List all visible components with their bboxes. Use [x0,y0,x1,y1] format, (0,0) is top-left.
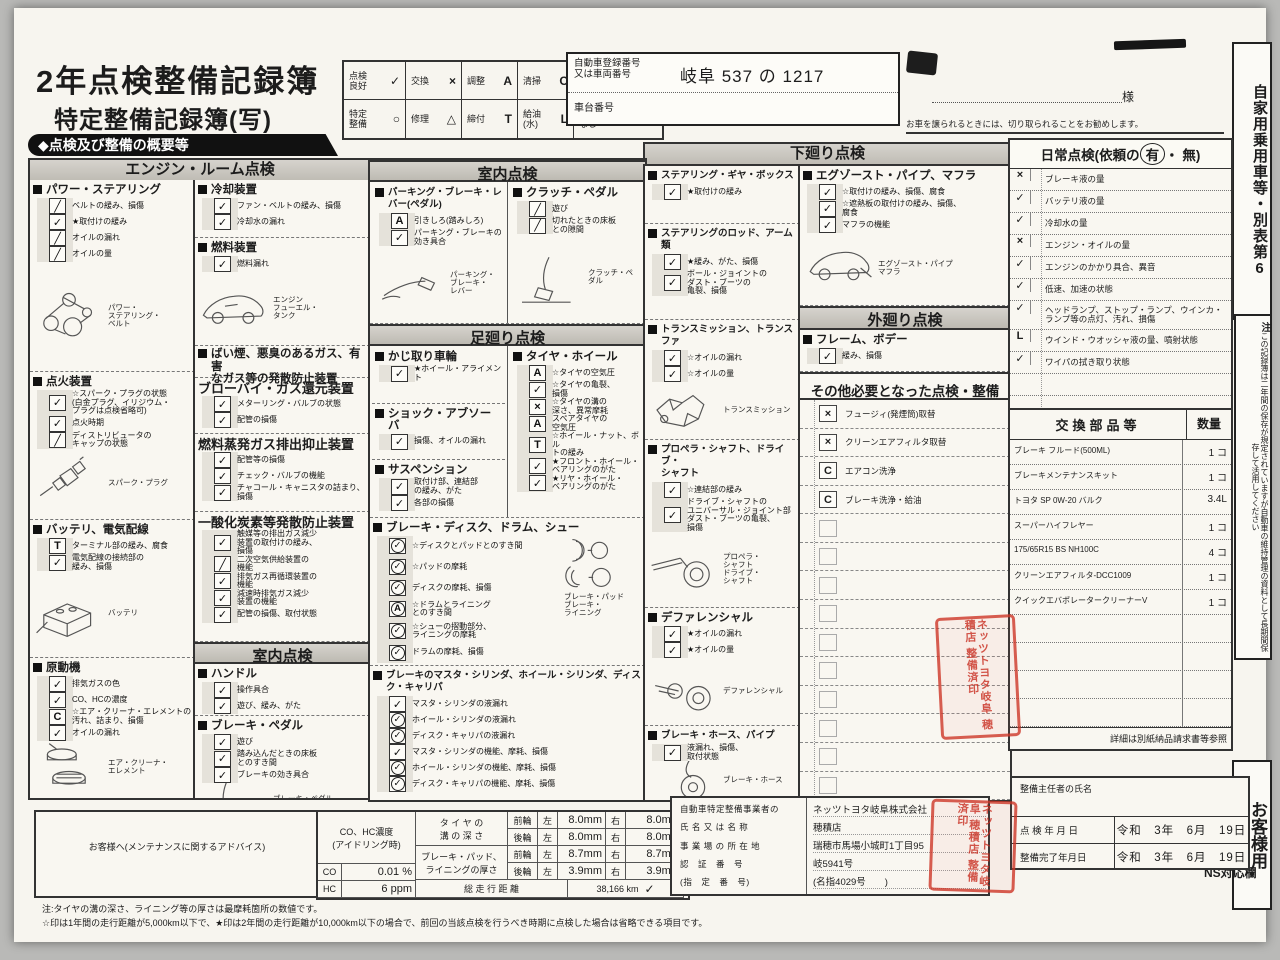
check-mark-box [819,720,837,737]
check-mark-box: ✓ [391,366,408,382]
inspection-group: ステアリングのロッド、アーム類✓★緩み、がた、損傷✓ボール・ジョイントの ダスト… [645,224,800,320]
check-mark-box: ✓ [529,475,546,491]
column-underbody-1: ステアリング・ギヤ・ボックス✓★取付けの緩みステアリングのロッド、アーム類✓★緩… [643,164,802,802]
daily-inspection-row: ✓エンジンのかかり具合、異音 [1010,257,1231,279]
check-item-label: ★ホイール・アライメント [414,365,502,382]
check-item-label: ☆オイルの漏れ [687,354,742,363]
check-mark-box: ✓ [819,184,836,200]
group-title-text: ショック・アブソーバ [388,408,502,432]
check-item: ✓★取付けの緩み [39,214,192,230]
check-item: ✓点火時期 [39,416,192,432]
check-item: ╱遊び [519,201,640,217]
part-name [1010,671,1183,698]
row-grid-cell [800,571,815,599]
check-item-label: ★取付けの緩み [687,188,742,197]
daily-check-mark: ✓ [1010,301,1031,314]
legend-mark: T [505,114,512,124]
part-illustration: エア・クリーナ・ エレメント [33,741,192,792]
check-mark-box: A [529,416,546,432]
odometer-label: 総 走 行 距 離 [416,880,568,898]
illustration-labels: プロペラ・ シャフトドライブ・ シャフト [723,553,761,585]
check-item: ✓☆ディスクとパッドとのすき間 [379,538,546,554]
illustration-label: ブレーキ・ペダル [273,795,333,801]
business-label: 氏 名 又 は 名 称 [680,821,802,833]
black-square-icon [648,171,657,180]
part-illustration: トランスミッション [648,382,797,437]
check-item-label: ドライブ・シャフトの ユニバーサル・ジョイント部 ダスト・ブーツの亀裂、 損傷 [687,498,791,532]
check-item: ✓☆スパーク・プラグの状態 (白金プラグ、イリジウム・ プラグは点検省略可) [39,390,192,416]
clutch-illustration-icon [513,250,585,304]
daily-inspection-row [1010,374,1231,396]
daily-check-mark: × [1010,169,1031,181]
check-item: ✓★ホイール・アライメント [381,365,502,382]
check-item: ╱二次空気供給装置の 機能 [204,556,367,573]
check-item: ✓★取付けの緩み [654,184,797,200]
check-items: ✓☆ディスクとパッドとのすき間✓☆パッドの摩耗✓ディスクの摩耗、損傷A☆ドラムと… [373,536,546,663]
form-title: 2年点検整備記録簿 [36,56,319,101]
check-mark-box: ✓ [389,538,406,554]
wheel-label: 前輪 [508,846,538,863]
hose-illustration-icon [648,761,720,798]
check-item-label: 配管等の損傷 [237,456,285,465]
chassis-number-label: 車台番号 [568,93,678,121]
other-maintenance-row: Cブレーキ洗浄・給油 [800,486,1010,515]
legend-cell: 特定 整備○ [344,100,406,138]
check-item: ✓★緩み、がた、損傷 [654,254,797,270]
daily-check-mark: L [1010,330,1031,342]
check-item: Tターミナル部の緩み、腐食 [39,538,192,554]
check-item-label: ボール・ジョイントの ダスト・ブーツの 亀裂、損傷 [687,270,767,296]
part-name [1010,615,1183,642]
black-square-icon [648,445,657,454]
parts-row [1010,671,1231,699]
check-item-label: ディスク・キャリパの液漏れ [412,732,515,741]
group-title: ブレーキ・ペダル [198,720,367,732]
black-square-icon [33,185,42,194]
daily-inspection-row: ×ブレーキ液の量 [1010,169,1231,191]
measurements-table: CO、HC濃度 (アイドリング時)CO0.01 %HC6 ppmタ イ ヤ の … [316,810,690,900]
circled-mark: ✓ [391,581,405,595]
check-mark-box: ✓ [49,416,66,432]
check-item: ✓損傷、オイルの漏れ [381,434,502,450]
inspection-group: ブレーキ・ホース、パイプ✓液漏れ、損傷、 取付状態ブレーキ・ホース [645,726,800,800]
row-grid-cell [800,772,815,800]
check-item-label: ディスク・キャリパの機能、摩耗、損傷 [412,780,555,789]
group-title-text: ステアリング・ギヤ・ボックス [661,170,794,182]
check-mark-box: ✓ [214,767,231,783]
check-item-label: 排気ガス再循環装置の 機能 [237,573,317,590]
customer-suffix: 様 [1122,88,1134,105]
check-item: ╱切れたときの床板 との隙間 [519,217,640,234]
column-interior-undercarriage: 室内点検パーキング・ブレーキ・レバー(ペダル)A引きしろ(踏みしろ)✓パーキング… [368,158,647,802]
check-mark-box: ✓ [389,728,406,744]
part-illustration: マスタ・シリンダディスク・ キャリパ [373,792,642,802]
car-illustration-icon [198,281,270,335]
check-item-label: 引きしろ(踏みしろ) [414,217,483,226]
check-item: ✓マスタ・シリンダの機能、摩耗、損傷 [379,744,642,760]
check-item-label: オイルの漏れ [72,729,120,738]
ink-smudge [1114,39,1186,51]
row-label: フュージィ(発煙筒)取替 [841,408,936,420]
black-square-icon [648,325,657,334]
completion-date-value: 令和 3年 6月 19日 [1115,849,1248,865]
check-mark-box: ✓ [391,479,408,495]
illustration-label: パワー・ ステアリング・ ベルト [108,304,161,328]
check-mark-box: ✓ [389,559,406,575]
daily-item-label: ブレーキ液の量 [1042,173,1108,186]
diff-illustration-icon [648,664,720,718]
check-item: ✓ブレーキの効き具合 [204,767,367,783]
left-label: 左 [538,812,558,829]
parts-row: ブレーキメンテナンスキット1 コ [1010,465,1231,490]
part-qty [1183,699,1231,726]
check-item: ✓☆パッドの摩耗 [379,559,546,575]
check-item-label: 遊び、緩み、がた [237,702,301,711]
part-qty [1183,615,1231,642]
check-item-label: 減速時排気ガス減少 装置の機能 [237,590,309,607]
group-title-text: ブレーキ・ディスク、ドラム、シュー [386,522,579,534]
chief-mechanic-label: 整備主任者の氏名 [1012,778,1248,817]
check-item-label: チャコール・キャニスタの詰まり、 損傷 [237,484,365,501]
check-mark-box: ✓ [214,535,231,551]
part-illustration: ブレーキ・パッドブレーキ・ ライニング [546,536,642,663]
check-mark-box: C [819,462,837,479]
daily-check-mark: ✓ [1010,191,1031,204]
inspection-group: トランスミッション、トランスファ✓☆オイルの漏れ✓☆オイルの量トランスミッション [645,320,800,440]
circled-mark: ✓ [391,761,405,775]
plug-illustration-icon [33,456,105,510]
check-items: ✓★オイルの漏れ✓★オイルの量 [648,626,797,658]
check-item-label: パーキング・ブレーキの 効き具合 [414,229,502,246]
footnote-1: 注:タイヤの溝の深さ、ライニング等の厚さは最摩耗箇所の数値です。 [42,902,322,915]
group-title-text: トランスミッション、トランスファ [661,324,797,348]
row-grid-cell [800,629,815,657]
group-header: ばい煙、悪臭のあるガス、有害 なガス等の発散防止装置 [195,346,370,378]
check-item: ✓★オイルの量 [654,642,797,658]
pad-thickness-label: ブレーキ・パッド、 ライニングの厚さ [416,846,508,880]
black-square-icon [198,243,207,252]
form-subtitle: 特定整備記録簿(写) [54,100,272,135]
other-maintenance-row: Cエアコン洗浄 [800,457,1010,486]
group-title-text: 冷却装置 [211,184,257,196]
check-item: ✓取付け部、連結部 の緩み、がた [381,478,502,495]
check-item-label: ファン・ベルトの緩み、損傷 [237,202,341,211]
check-mark-box: ✓ [214,485,231,501]
check-items: ✓遊び✓踏み込んだときの床板 とのすき間✓ブレーキの効き具合 [198,734,367,783]
group-title-text: ハンドル [211,668,257,680]
group-title: 原動機 [33,662,192,674]
row-grid-cell [800,514,815,542]
group-title-text: ステアリングのロッド、アーム類 [661,228,797,252]
check-item: ✓触媒等の排出ガス減少 装置の取付けの緩み、 損傷 [204,530,367,556]
group-title: ハンドル [198,668,367,680]
inspection-group: クラッチ・ペダル╱遊び╱切れたときの床板 との隙間クラッチ・ペダル [510,183,643,322]
check-item-label: 緩み、損傷 [842,352,882,361]
group-title: かじ取り車輪 [375,351,502,363]
row-grid-cell [800,714,815,742]
check-item: ╱オイルの漏れ [39,230,192,246]
inspection-group: ショック・アブソーバ✓損傷、オイルの漏れ [372,404,505,461]
company-seal: ネッツトヨタ岐阜 穂積店 整備済印 [935,614,1021,740]
part-qty: 1 コ [1183,465,1231,489]
check-item-label: ドラムの摩耗、損傷 [412,648,484,657]
illustration-labels: スパーク・プラグ [108,479,168,487]
master-illustration-icon [373,793,445,802]
part-qty: 1 コ [1183,515,1231,539]
check-item: ✓配管等の損傷 [204,452,367,468]
cut-note: お車を譲られるときには、切り取られることをお勧めします。 [906,118,1224,134]
ink-smudge [906,50,938,75]
check-item-label: 排気ガスの色 [72,680,120,689]
legend-label: 給油 (水) [523,109,541,129]
row-grid-cell [800,600,815,628]
check-items: ✓液漏れ、損傷、 取付状態 [648,744,797,761]
check-item-label: ホイール・シリンダの機能、摩耗、損傷 [412,764,556,773]
check-mark-box: ╱ [49,198,66,214]
check-mark-box: ✓ [214,590,231,606]
inner-banner: 室内点検 [193,642,372,664]
check-item: A引きしろ(踏みしろ) [381,213,502,229]
black-square-icon [803,171,812,180]
check-item-label: マスタ・シリンダの液漏れ [412,700,508,709]
check-mark-box [819,748,837,765]
illustration-label: パーキング・ ブレーキ・ レバー [450,271,495,295]
legend-cell: 調整A [462,62,518,99]
group-title: ブローバイ・ガス還元装置 [198,382,367,395]
left-label: 左 [538,863,558,880]
check-item-label: ☆タイヤの亀裂、 損傷 [552,381,615,398]
check-mark-box: ✓ [49,214,66,230]
check-item: ✓配管の損傷 [204,412,367,428]
shaft-illustration-icon [648,542,720,596]
black-square-icon [33,525,42,534]
daily-inspection-row: ×エンジン・オイルの量 [1010,235,1231,257]
check-mark-box [819,634,837,651]
part-name: 175/65R15 BS NH100C [1010,540,1183,564]
check-mark-box: × [819,405,837,422]
check-item: ✓パーキング・ブレーキの 効き具合 [381,229,502,246]
daily-check-mark: ✓ [1010,257,1031,270]
check-items: ✓☆オイルの漏れ✓☆オイルの量 [648,350,797,382]
check-item: ╱ディストリビュータの キャップの状態 [39,432,192,449]
row-grid-cell [1031,235,1042,256]
inspection-group: ステアリング・ギヤ・ボックス✓★取付けの緩み [645,166,800,224]
legend-cell: 修理△ [406,100,462,138]
daily-inspection-row: ✓ワイパの拭き取り状態 [1010,352,1231,374]
check-item-label: スペアタイヤの 空気圧 [552,415,607,432]
check-mark-box: ✓ [49,395,66,411]
check-mark-box: ✓ [214,412,231,428]
row-grid-cell [1031,257,1042,278]
other-maintenance-row [800,514,1010,543]
side-strip-note: 注この記録簿は二年間の保存が規定されていますが自動車の維持管理の資料として長期間… [1234,314,1272,660]
illustration-labels: ブレーキ・ペダル [273,795,333,801]
check-items: ✓取付け部、連結部 の緩み、がた✓各部の損傷 [375,478,502,511]
check-mark-box: ✓ [214,198,231,214]
check-mark-box: × [529,399,546,415]
check-items: ╱ベルトの緩み、損傷✓★取付けの緩み╱オイルの漏れ╱オイルの量 [33,198,192,262]
check-item: ✓ホイール・シリンダの機能、摩耗、損傷 [379,760,642,776]
check-mark-box: ✓ [214,256,231,272]
check-item-label: 冷却水の漏れ [237,218,285,227]
black-square-icon [648,731,657,740]
part-qty: 3.4L [1183,490,1231,514]
part-illustration: スパーク・プラグ [33,449,192,518]
check-mark-box: ✓ [664,626,681,642]
brakepads-illustration-icon [558,536,630,590]
row-grid-cell [1031,352,1042,373]
check-item: ✓CO、HCの濃度 [39,692,192,708]
parts-detail-note: 詳細は別紙納品請求書等参照 [1010,727,1231,749]
check-item-label: ★緩み、がた、損傷 [687,258,758,267]
inner-banner: 外廻り点検 [798,306,1012,330]
check-mark-box [819,605,837,622]
check-item: ✓遊び [204,734,367,750]
chassis-number-value [678,93,898,121]
check-mark-box: ✓ [214,698,231,714]
check-mark-box: ✓ [49,725,66,741]
black-square-icon [198,669,207,678]
check-mark-box: C [49,709,66,725]
other-maintenance-row [800,743,1010,772]
part-illustration: デファレンシャル [648,658,797,723]
inspection-group: サスペンション✓取付け部、連結部 の緩み、がた✓各部の損傷 [372,460,505,516]
row-grid-cell [800,686,815,714]
daily-item-label [1042,383,1048,387]
inspection-group: ブレーキ・ディスク、ドラム、シュー✓☆ディスクとパッドとのすき間✓☆パッドの摩耗… [370,518,645,666]
daily-item-label: エンジンのかかり具合、異音 [1042,261,1159,274]
check-items: ✓★ホイール・アライメント [375,365,502,382]
check-item: ✓各部の損傷 [381,495,502,511]
daily-item-label: 低速、加速の状態 [1042,283,1116,296]
pair-left: パーキング・ブレーキ・レバー(ペダル)A引きしろ(踏みしろ)✓パーキング・ブレー… [370,182,508,323]
group-title-text: かじ取り車輪 [388,351,457,363]
daily-item-label: ヘッドランプ、ストップ・ランプ、ウインカ・ ランプ等の点灯、汚れ、損傷 [1042,304,1225,326]
legend-label: 修理 [411,114,429,124]
inspection-group: ブレーキのマスタ・シリンダ、ホイール・シリンダ、ディスク・キャリパ✓マスタ・シリ… [370,666,645,802]
check-mark-box: ✓ [391,434,408,450]
part-name: ブレーキメンテナンスキット [1010,465,1183,489]
part-illustration: バッテリ [33,571,192,655]
group-title: プロペラ・シャフト、ドライブ・ シャフト [648,444,797,480]
part-illustration: パワー・ ステアリング・ ベルト [33,262,192,369]
illustration-label: トランスミッション [723,406,790,414]
check-item-label: 操作具合 [237,686,269,695]
check-item: ✓排気ガスの色 [39,676,192,692]
check-item: ✓メターリング・バルブの状態 [204,396,367,412]
check-item-label: ★リヤ・ホイール・ ベアリングのがた [552,475,623,492]
check-item-label: オイルの量 [72,250,112,259]
check-item-label: 二次空気供給装置の 機能 [237,556,309,573]
check-items: ✓緩み、損傷 [803,348,1007,364]
parts-row: トヨタ SP 0W-20 バルク3.4L [1010,490,1231,515]
hc-value: 6 ppm [342,881,416,898]
illustration-label: ブレーキ・ ライニング [564,601,624,617]
check-item: ✓☆シューの摺動部分、 ライニングの摩耗 [379,623,546,640]
check-item-label: 遊び [552,205,568,214]
group-title-text: サスペンション [388,464,467,476]
check-mark-box: ✓ [214,682,231,698]
part-qty [1183,671,1231,698]
check-item-label: ☆連結部の緩み [687,486,742,495]
check-item: ✓排気ガス再循環装置の 機能 [204,573,367,590]
group-title: バッテリ、電気配線 [33,524,192,536]
check-mark-box: ✓ [529,458,546,474]
illustration-labels: エア・クリーナ・ エレメント [108,759,168,775]
check-mark-box: ✓ [819,201,836,217]
check-item: ✓緩み、損傷 [809,348,1007,364]
check-item: ✓★フロント・ホイール・ ベアリングのがた [519,458,640,475]
row-grid-cell [1031,169,1042,190]
check-item: ✓燃料漏れ [204,256,367,272]
inspection-form-paper: 2年点検整備記録簿 特定整備記録簿(写) ◆点検及び整備の概要等 点検 良好✓交… [14,8,1266,942]
check-item-label: ★フロント・ホイール・ ベアリングのがた [552,458,639,475]
check-item-label: ☆タイヤの溝の 深さ、異常摩耗 [552,398,608,415]
check-mark-box: ✓ [49,555,66,571]
check-items: Tターミナル部の緩み、腐食✓電気配線の接続部の 緩み、損傷 [33,538,192,571]
check-mark-box: A [529,365,546,381]
registration-number-label: 自動車登録番号 又は車両番号 [568,54,680,92]
check-item: ╱オイルの量 [39,246,192,262]
part-qty: 1 コ [1183,590,1231,614]
items-with-illustration: ✓☆ディスクとパッドとのすき間✓☆パッドの摩耗✓ディスクの摩耗、損傷A☆ドラムと… [373,536,642,663]
check-item: ✓マスタ・シリンダの液漏れ [379,696,642,712]
legend-cell: 点検 良好✓ [344,62,406,99]
check-item: ✓☆オイルの漏れ [654,350,797,366]
legend-mark: △ [447,114,456,124]
circled-mark: C [824,494,832,506]
check-mark-box [819,548,837,565]
inner-banner: 足廻り点検 [368,324,647,346]
circled-mark: ✓ [391,729,405,743]
daily-item-label: バッテリ液の量 [1042,195,1108,208]
check-mark-box: ✓ [214,751,231,767]
group-title-text: プロペラ・シャフト、ドライブ・ シャフト [661,444,797,480]
legend-label: 調整 [467,76,485,86]
check-mark-box: ✓ [214,573,231,589]
check-mark-box: × [819,434,837,451]
check-item: ✓ディスク・キャリパの機能、摩耗、損傷 [379,776,642,792]
check-item: ✓ディスク・キャリパの液漏れ [379,728,642,744]
check-item-label: ☆遮熱板の取付けの緩み、損傷、 腐食 [842,200,961,217]
circled-mark: ✓ [391,539,405,553]
illustration-labels: バッテリ [108,609,138,617]
parts-row: ブレーキ フルード(500ML)1 コ [1010,440,1231,465]
check-item: ✓チャコール・キャニスタの詰まり、 損傷 [204,484,367,501]
check-item: ✓操作具合 [204,682,367,698]
legend-cell: 交換× [406,62,462,99]
other-maintenance-row: ×クリーンエアフィルタ取替 [800,429,1010,458]
row-label: エアコン洗浄 [841,465,896,477]
check-item: ✓減速時排気ガス減少 装置の機能 [204,590,367,607]
registration-box: 自動車登録番号 又は車両番号 岐阜 537 の 1217 車台番号 [566,52,900,126]
check-mark-box: ✓ [214,214,231,230]
check-mark-box: ✓ [819,348,836,364]
part-illustration: ブレーキ・ペダル [198,783,367,800]
paired-groups: パーキング・ブレーキ・レバー(ペダル)A引きしろ(踏みしろ)✓パーキング・ブレー… [370,182,645,324]
check-item: T☆ホイール・ナット、ボル トの緩み [519,432,640,458]
group-title-text: クラッチ・ペダル [526,187,618,199]
inspection-group: かじ取り車輪✓★ホイール・アライメント [372,347,505,404]
illustration-label: ドライブ・ シャフト [723,569,761,585]
check-mark-box: ✓ [391,230,408,246]
illustration-labels: パワー・ ステアリング・ ベルト [108,304,161,328]
check-mark-box: ╱ [214,556,231,572]
daily-inspection-row: ✓ヘッドランプ、ストップ・ランプ、ウインカ・ ランプ等の点灯、汚れ、損傷 [1010,301,1231,330]
group-title: フレーム、ボデー [803,334,1007,346]
black-square-icon [33,663,42,672]
check-item-label: ターミナル部の緩み、腐食 [72,542,168,551]
